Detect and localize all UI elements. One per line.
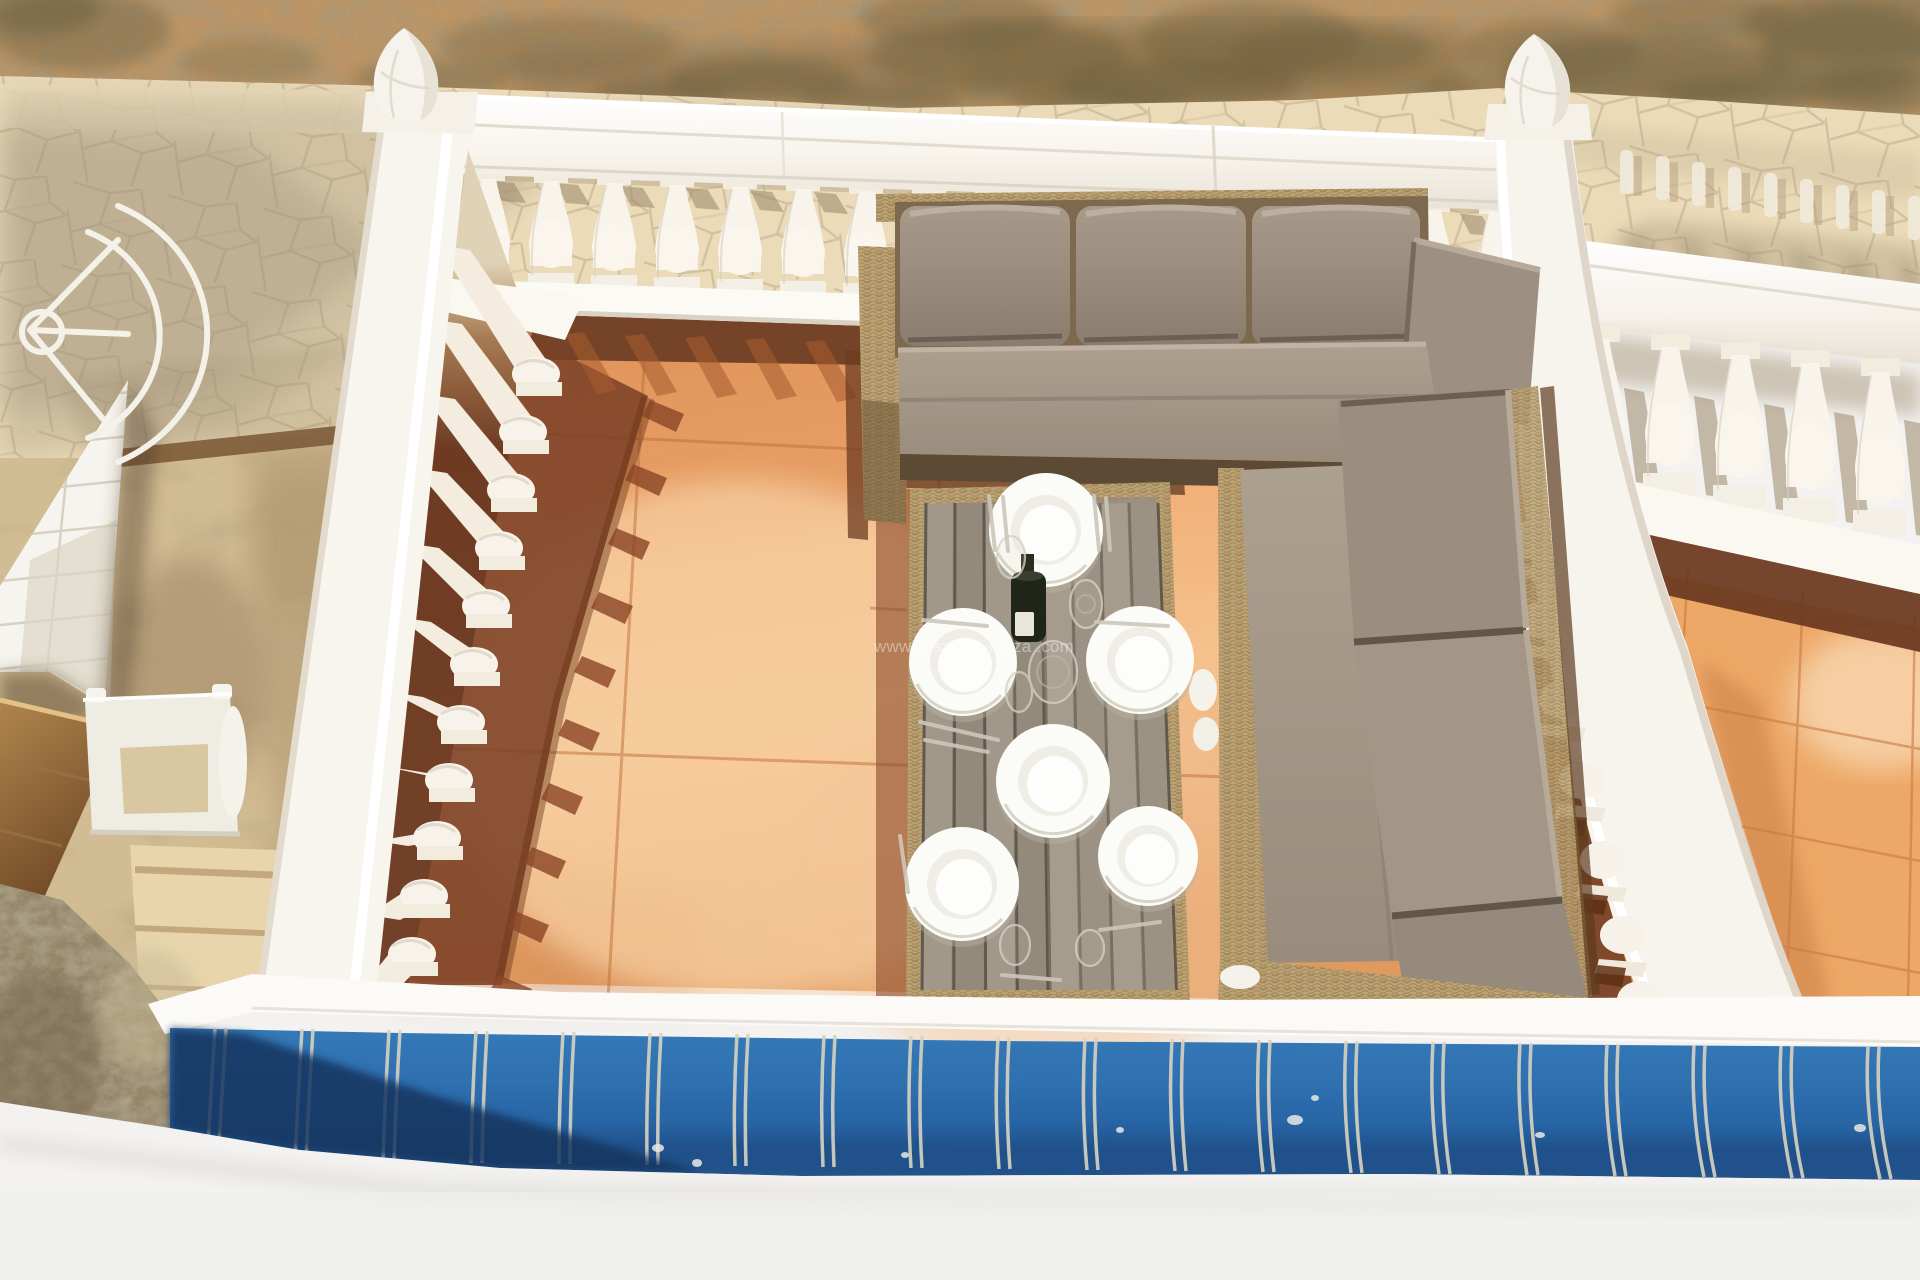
svg-text:www.casa-solymaza .com: www.casa-solymaza .com [873,637,1074,656]
